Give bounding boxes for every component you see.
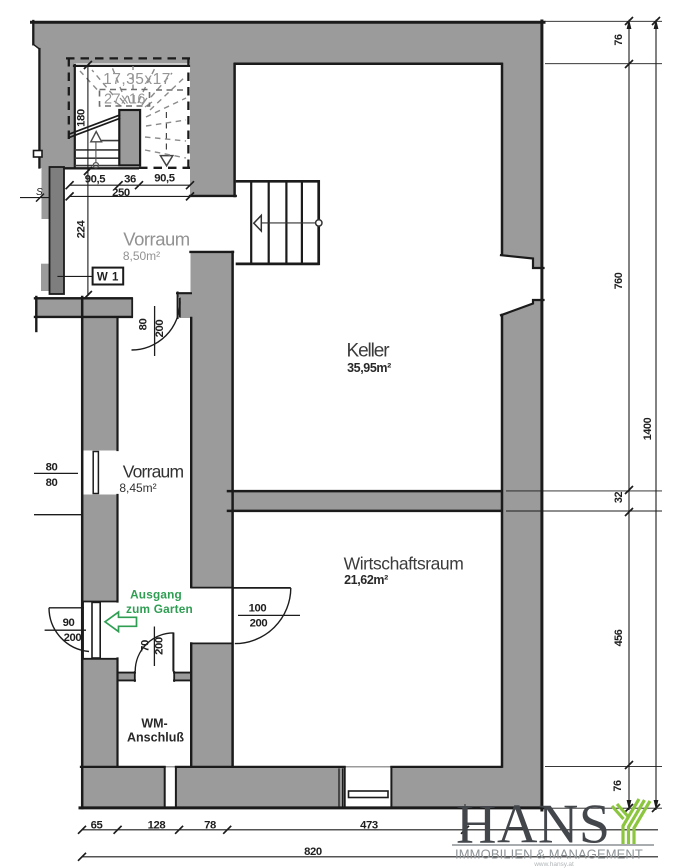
svg-text:35,95m²: 35,95m² — [347, 361, 391, 375]
svg-text:65: 65 — [91, 819, 103, 831]
svg-text:76: 76 — [612, 780, 624, 792]
svg-text:1400: 1400 — [642, 417, 654, 440]
svg-text:76: 76 — [613, 34, 625, 46]
svg-text:IMMOBILIEN & MANAGEMENT: IMMOBILIEN & MANAGEMENT — [455, 846, 643, 861]
svg-text:224: 224 — [76, 220, 88, 239]
svg-text:zum Garten: zum Garten — [126, 602, 193, 616]
svg-text:200: 200 — [154, 637, 166, 655]
svg-text:Vorraum: Vorraum — [123, 462, 184, 482]
svg-text:8,45m²: 8,45m² — [119, 481, 156, 495]
svg-text:80: 80 — [46, 462, 58, 474]
svg-text:200: 200 — [250, 618, 268, 630]
svg-text:Vorraum: Vorraum — [123, 229, 190, 250]
svg-text:S: S — [36, 187, 43, 198]
svg-text:78: 78 — [204, 819, 216, 831]
svg-text:180: 180 — [76, 109, 88, 127]
svg-text:90: 90 — [63, 617, 75, 629]
svg-text:128: 128 — [148, 819, 166, 831]
svg-text:17,35x17: 17,35x17 — [103, 71, 171, 88]
svg-text:80: 80 — [46, 477, 58, 489]
svg-text:21,62m²: 21,62m² — [344, 573, 388, 587]
svg-text:456: 456 — [613, 629, 625, 646]
svg-text:27x16: 27x16 — [104, 92, 146, 108]
svg-text:70: 70 — [140, 640, 152, 652]
svg-text:250: 250 — [112, 187, 130, 199]
svg-text:Ausgang: Ausgang — [130, 588, 182, 602]
svg-text:473: 473 — [360, 819, 378, 831]
svg-text:W 1: W 1 — [97, 272, 119, 284]
svg-text:Anschluß: Anschluß — [127, 731, 184, 745]
svg-text:80: 80 — [138, 319, 150, 331]
svg-text:760: 760 — [613, 272, 625, 289]
svg-text:Wirtschaftsraum: Wirtschaftsraum — [344, 554, 464, 574]
svg-text:90,5: 90,5 — [154, 173, 175, 185]
svg-text:100: 100 — [249, 603, 267, 615]
svg-text:WM-: WM- — [141, 717, 167, 731]
svg-text:32: 32 — [613, 492, 625, 504]
svg-text:8,50m²: 8,50m² — [123, 249, 160, 263]
svg-text:Keller: Keller — [347, 341, 391, 362]
svg-text:www.hansy.at: www.hansy.at — [533, 861, 574, 868]
svg-text:200: 200 — [154, 320, 166, 338]
svg-text:36: 36 — [124, 174, 136, 186]
svg-text:90,5: 90,5 — [85, 174, 106, 186]
svg-text:200: 200 — [64, 632, 82, 644]
svg-text:820: 820 — [304, 846, 322, 858]
